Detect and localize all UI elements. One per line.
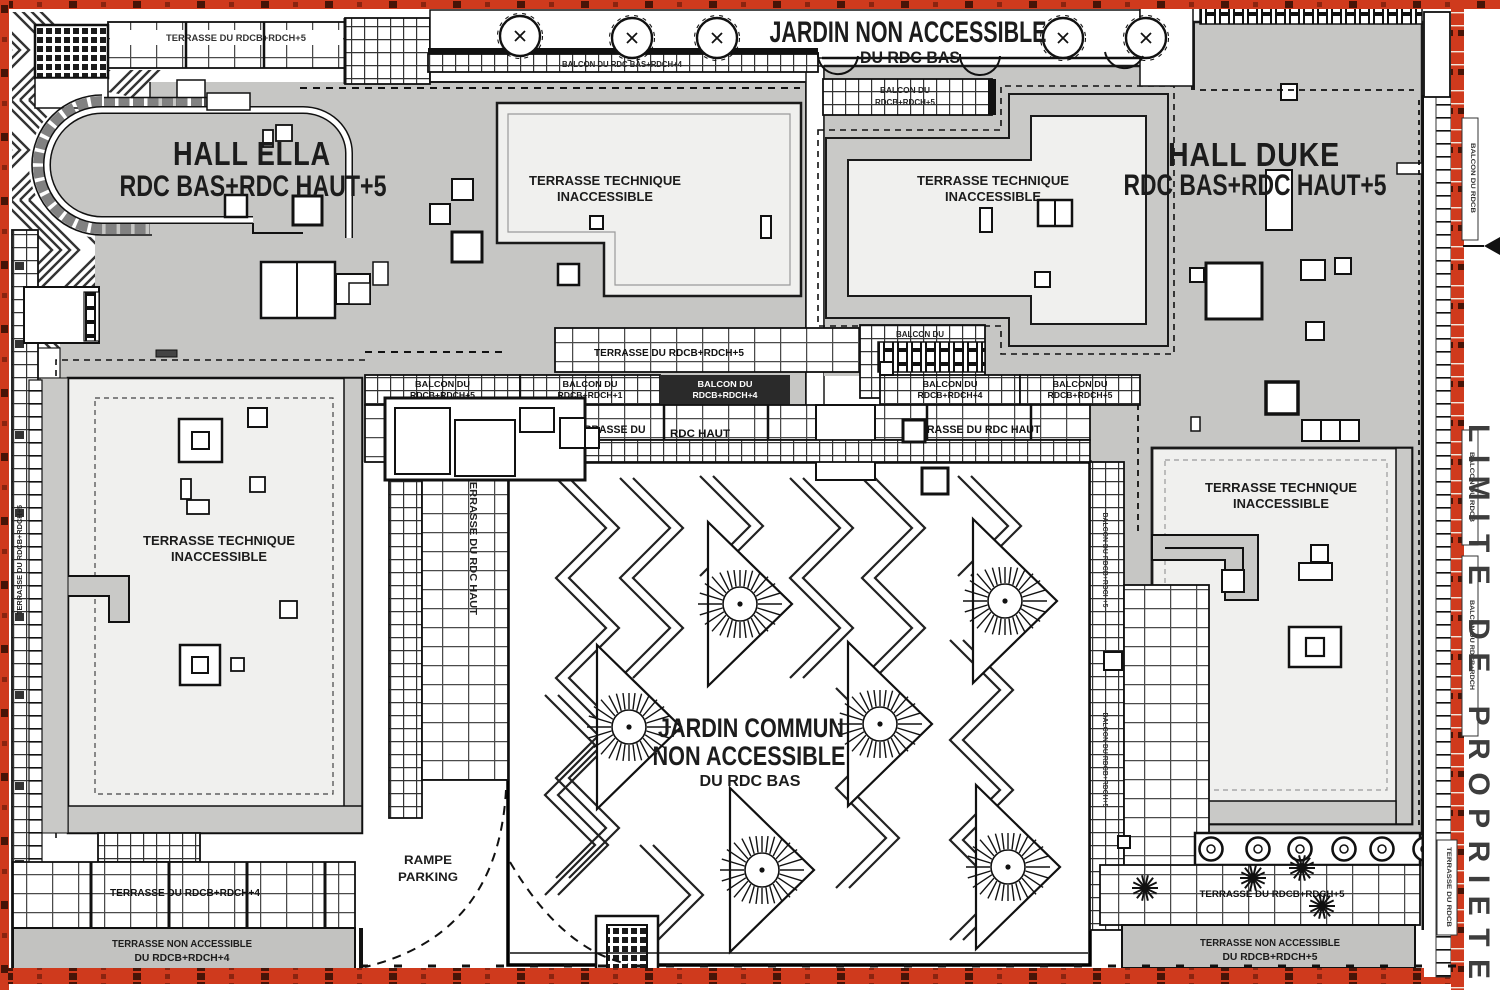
svg-text:INACCESSIBLE: INACCESSIBLE: [1233, 497, 1329, 511]
svg-text:TERRASSE DU RDCB+RDCH+4: TERRASSE DU RDCB+RDCH+4: [110, 888, 260, 899]
svg-text:TERRASSE DU RDCB+RDCH+5: TERRASSE DU RDCB+RDCH+5: [594, 348, 744, 359]
svg-text:TERRASSE DU RDCB+RDCH+5: TERRASSE DU RDCB+RDCH+5: [15, 505, 24, 615]
svg-text:BALCON DU RDC BAS+RDCH+4: BALCON DU RDC BAS+RDCH+4: [562, 60, 683, 69]
svg-text:RDC BAS+RDC HAUT+5: RDC BAS+RDC HAUT+5: [120, 170, 387, 203]
svg-text:DU RDC BAS: DU RDC BAS: [700, 773, 801, 790]
svg-text:BALCON DU: BALCON DU: [923, 379, 978, 389]
svg-text:RDCB+RDCH+4: RDCB+RDCH+4: [693, 390, 758, 400]
svg-text:RDC HAUT: RDC HAUT: [670, 428, 730, 440]
svg-text:INACCESSIBLE: INACCESSIBLE: [557, 190, 653, 204]
svg-text:INACCESSIBLE: INACCESSIBLE: [171, 550, 267, 564]
svg-text:BALCON DU: BALCON DU: [896, 330, 944, 339]
svg-text:TERRASSE TECHNIQUE: TERRASSE TECHNIQUE: [1205, 481, 1357, 495]
svg-text:DU RDCB+RDCH+4: DU RDCB+RDCH+4: [135, 952, 230, 964]
svg-text:TERRASSE NON ACCESSIBLE: TERRASSE NON ACCESSIBLE: [1200, 937, 1340, 949]
svg-text:TERRASSE TECHNIQUE: TERRASSE TECHNIQUE: [529, 174, 681, 188]
svg-text:NON ACCESSIBLE: NON ACCESSIBLE: [653, 741, 846, 771]
svg-text:HALL ELLA: HALL ELLA: [173, 135, 331, 172]
svg-text:BALCON DU: BALCON DU: [698, 379, 753, 389]
svg-text:DU RDCB+RDCH+5: DU RDCB+RDCH+5: [1223, 951, 1318, 963]
svg-text:HALL DUKE: HALL DUKE: [1168, 136, 1340, 173]
svg-text:BALCON DU RDCB+RDCH+5: BALCON DU RDCB+RDCH+5: [1101, 513, 1108, 608]
svg-text:BALCON DU: BALCON DU: [563, 379, 618, 389]
svg-text:RDCB+RDCH+5: RDCB+RDCH+5: [1048, 390, 1113, 400]
svg-text:RDCB+RDCH+4: RDCB+RDCH+4: [918, 390, 983, 400]
svg-text:LIMITE DE PROPRIETE: LIMITE DE PROPRIETE: [1462, 424, 1495, 990]
svg-text:TERRASSE TECHNIQUE: TERRASSE TECHNIQUE: [143, 534, 295, 548]
svg-text:TERRASSE NON ACCESSIBLE: TERRASSE NON ACCESSIBLE: [112, 938, 252, 950]
svg-text:BALCON DU RDCB+RDCH+5: BALCON DU RDCB+RDCH+5: [1101, 713, 1108, 808]
svg-text:RDC BAS+RDC HAUT+5: RDC BAS+RDC HAUT+5: [1124, 169, 1387, 202]
svg-text:BALCON DU: BALCON DU: [880, 86, 930, 95]
svg-text:JARDIN COMMUN: JARDIN COMMUN: [658, 713, 844, 743]
svg-text:RAMPE: RAMPE: [404, 853, 452, 867]
svg-text:INACCESSIBLE: INACCESSIBLE: [945, 190, 1041, 204]
svg-text:PARKING: PARKING: [398, 870, 458, 884]
svg-text:JARDIN NON ACCESSIBLE: JARDIN NON ACCESSIBLE: [770, 16, 1047, 49]
svg-text:TERRASSE TECHNIQUE: TERRASSE TECHNIQUE: [917, 174, 1069, 188]
svg-text:BALCON DU: BALCON DU: [415, 379, 470, 389]
svg-text:TERRASSE DU RDC HAUT: TERRASSE DU RDC HAUT: [467, 475, 478, 615]
svg-text:BALCON DU RDCB: BALCON DU RDCB: [1469, 143, 1476, 213]
svg-text:BALCON DU: BALCON DU: [1053, 379, 1108, 389]
svg-text:DU RDC BAS: DU RDC BAS: [860, 48, 960, 67]
svg-text:TERRASSE DU RDCB: TERRASSE DU RDCB: [1445, 847, 1452, 927]
svg-text:RDCB+RDCH+5: RDCB+RDCH+5: [875, 98, 936, 107]
